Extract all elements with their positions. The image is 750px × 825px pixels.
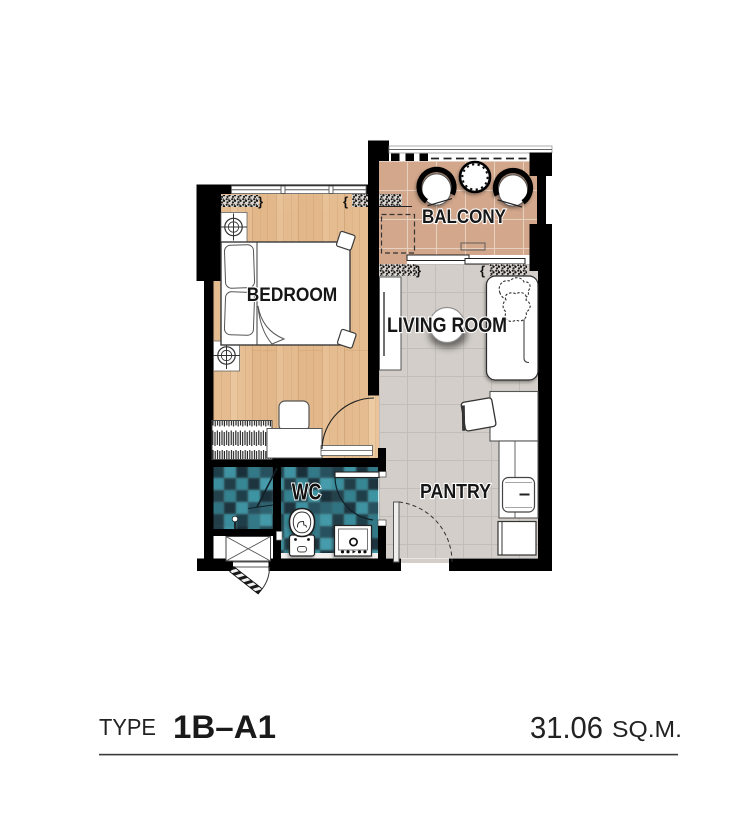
svg-text:BEDROOM: BEDROOM [247, 285, 338, 306]
svg-text:TYPE: TYPE [99, 714, 156, 740]
svg-text:SQ.M.: SQ.M. [612, 716, 682, 742]
svg-text:PANTRY: PANTRY [420, 481, 492, 503]
svg-text:LIVING ROOM: LIVING ROOM [387, 314, 507, 337]
svg-text:31.06: 31.06 [530, 710, 603, 745]
svg-text:WC: WC [292, 479, 322, 505]
svg-text:}: } [416, 263, 421, 278]
svg-text:{: { [343, 194, 348, 209]
svg-text:{: { [480, 263, 485, 278]
svg-text:1B–A1: 1B–A1 [173, 709, 276, 745]
svg-text:}: } [258, 194, 263, 209]
svg-text:BALCONY: BALCONY [422, 206, 506, 228]
